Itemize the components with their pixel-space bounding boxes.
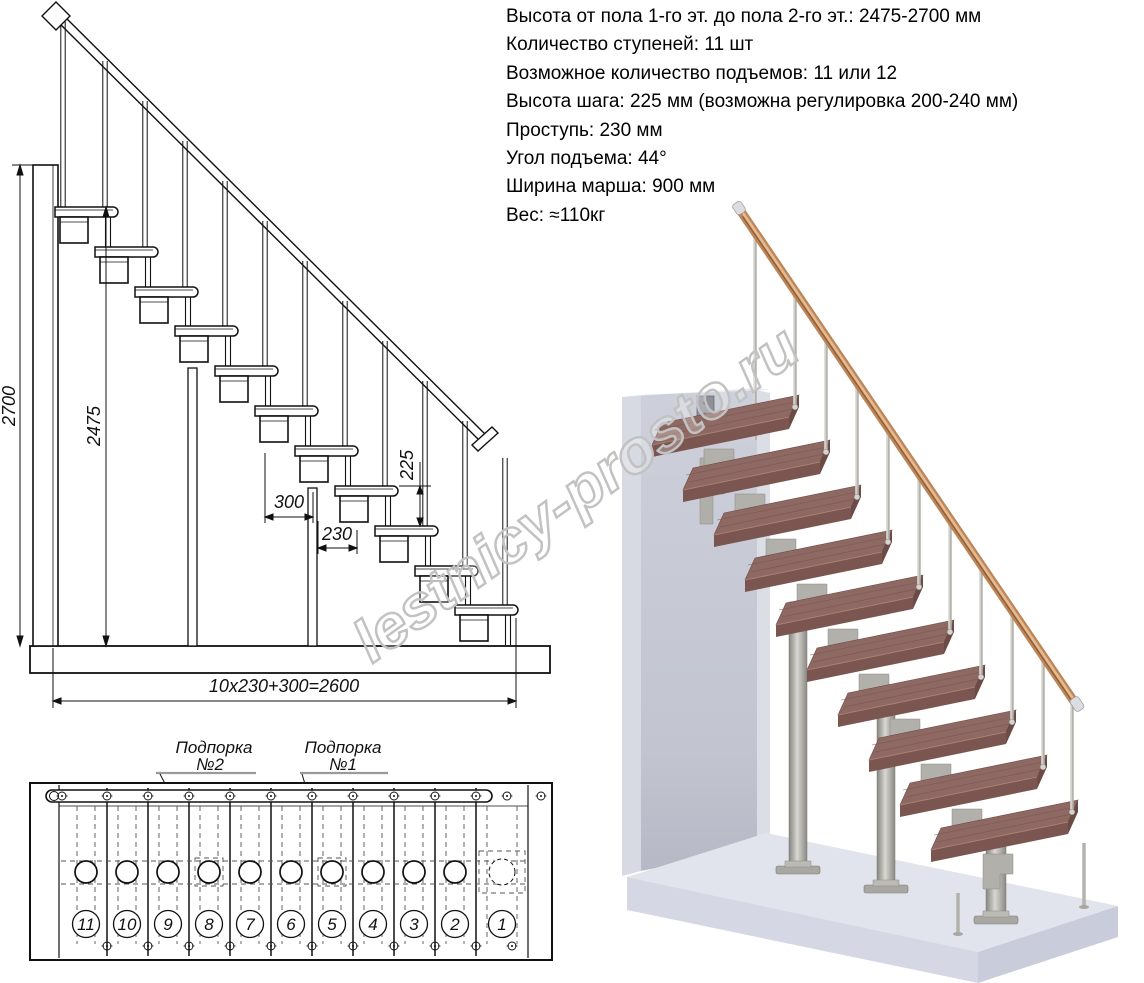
floor-slab: [30, 646, 550, 673]
step-modules: [55, 207, 518, 645]
floor-platform: [627, 833, 1118, 983]
dim-going: 230: [321, 524, 352, 544]
spec-line: Угол подъема: 44°: [506, 145, 1141, 173]
spec-line: Высота шага: 225 мм (возможна регулировк…: [506, 88, 1141, 116]
svg-text:11: 11: [77, 915, 95, 934]
page: 2700 2475 300 230 225 10x230+300=2600 По…: [0, 0, 1144, 983]
support2-number: №2: [196, 755, 224, 774]
svg-text:8: 8: [204, 915, 214, 934]
plan-view-drawing: Подпорка №2 Подпорка №1: [0, 728, 570, 978]
side-view-drawing: 2700 2475 300 230 225 10x230+300=2600: [0, 0, 570, 730]
dim-going-top: 300: [274, 492, 304, 512]
svg-text:9: 9: [163, 915, 173, 934]
spec-line: Высота от пола 1-го эт. до пола 2-го эт.…: [506, 3, 1141, 31]
support1-number: №1: [329, 755, 357, 774]
svg-text:2: 2: [449, 915, 460, 934]
stair-3d-render: [585, 180, 1144, 983]
wall-post: [33, 165, 58, 646]
dim-total-height: 2700: [0, 386, 19, 427]
svg-text:4: 4: [368, 915, 377, 934]
dim-riser: 225: [397, 449, 417, 481]
spec-line: Количество ступеней: 11 шт: [506, 31, 1141, 59]
svg-text:10: 10: [118, 915, 137, 934]
plan-handrail: [46, 790, 547, 802]
handrail-bottom-cap: [472, 427, 498, 451]
spec-line: Возможное количество подъемов: 11 или 12: [506, 60, 1141, 88]
svg-text:3: 3: [409, 915, 419, 934]
dim-length-formula: 10x230+300=2600: [209, 676, 359, 696]
svg-text:7: 7: [245, 915, 255, 934]
svg-text:5: 5: [327, 915, 337, 934]
spec-line: Проступь: 230 мм: [506, 117, 1141, 145]
handrail-top-cap: [42, 2, 70, 30]
svg-text:6: 6: [286, 915, 296, 934]
svg-text:1: 1: [497, 915, 506, 934]
dim-clear-height: 2475: [84, 405, 104, 447]
